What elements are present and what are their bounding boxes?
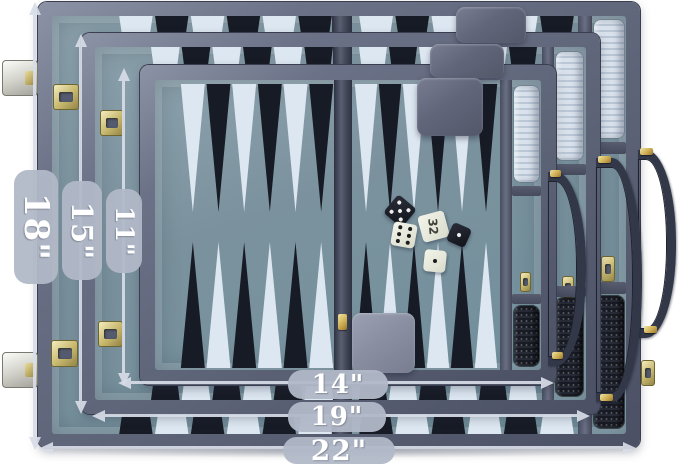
handle-bolt	[600, 394, 613, 401]
white-die-one	[423, 249, 447, 273]
lid-latch	[98, 321, 123, 347]
handle-bolt	[644, 326, 657, 333]
lid-latch	[53, 84, 79, 110]
dice-cup-large	[456, 7, 526, 43]
tray-latch-small	[520, 272, 531, 292]
checker-stack-white-medium	[556, 52, 583, 160]
handle-bolt	[640, 148, 653, 155]
checker-stack-black-small	[514, 306, 539, 366]
dimension-label-18in: 18"	[14, 170, 58, 284]
doubling-cube-value: 32	[419, 212, 448, 241]
points-row	[180, 242, 334, 368]
dimension-label-15in: 15"	[62, 181, 102, 280]
dimension-label-14in: 14"	[288, 370, 388, 399]
edge-latch	[641, 360, 655, 386]
handle-bolt	[550, 170, 561, 177]
white-die-six	[390, 221, 418, 249]
lid-latch	[51, 340, 78, 367]
dimension-label-22in: 22"	[283, 437, 395, 464]
tray-divider	[512, 186, 541, 196]
lid-latch	[100, 110, 124, 136]
tray-wall-small	[500, 80, 512, 370]
handle-large	[638, 150, 676, 338]
dimension-label-19in: 19"	[288, 402, 386, 432]
dimension-label-11in: 11"	[106, 189, 142, 273]
points-row	[180, 84, 334, 212]
hinge-plate	[338, 314, 347, 330]
tray-divider	[512, 294, 541, 304]
handle-bolt	[598, 156, 611, 163]
handle-bolt	[552, 352, 563, 359]
dice-cup-medium	[430, 44, 504, 78]
product-photo-backgammon-sizes: 32 18" 15" 11" 14" 19" 22"	[0, 0, 679, 471]
checker-stack-white-small	[514, 86, 539, 182]
dice-cup-bottom	[352, 313, 415, 373]
dice-cup-small	[417, 78, 483, 136]
doubling-cube: 32	[417, 210, 450, 243]
